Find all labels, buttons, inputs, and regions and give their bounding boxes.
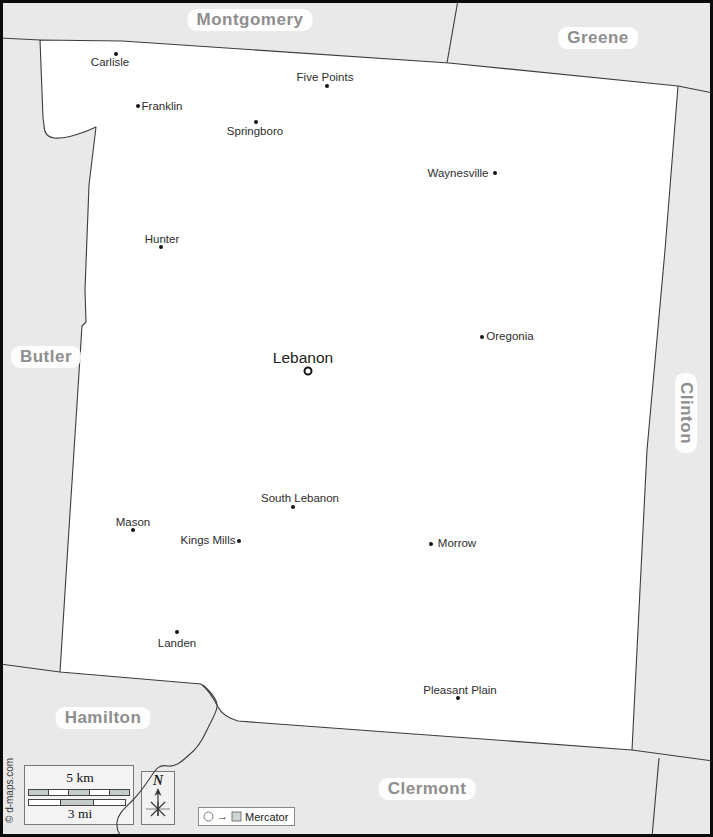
- compass-box: N: [141, 771, 175, 825]
- warren-county-shape: [40, 40, 678, 750]
- city-label-five-points: Five Points: [297, 71, 354, 83]
- county-label-clinton: Clinton: [675, 373, 697, 453]
- scale-mi-label: 3 mi: [25, 806, 135, 822]
- scale-mi-bar: [28, 799, 126, 806]
- city-label-carlisle: Carlisle: [91, 56, 129, 68]
- city-label-morrow: Morrow: [438, 537, 476, 549]
- city-dot-hunter: [159, 245, 163, 249]
- city-dot-morrow: [429, 542, 433, 546]
- city-label-mason: Mason: [116, 516, 151, 528]
- north-arrow-icon: [142, 772, 174, 824]
- city-label-springboro: Springboro: [227, 125, 283, 137]
- city-label-kings-mills: Kings Mills: [181, 534, 236, 546]
- scale-km-label: 5 km: [25, 770, 135, 786]
- city-label-south-lebanon: South Lebanon: [261, 492, 339, 504]
- arrow-right-icon: →: [217, 811, 228, 822]
- city-label-landen: Landen: [158, 637, 196, 649]
- square-icon: [231, 811, 242, 822]
- scale-bar-box: 5 km 3 mi: [24, 765, 134, 825]
- county-seat-ring-lebanon: [304, 367, 313, 376]
- city-label-franklin: Franklin: [142, 100, 183, 112]
- county-label-clermont: Clermont: [379, 778, 476, 800]
- city-dot-kings-mills: [237, 539, 241, 543]
- credit-text: © d-maps.com: [4, 758, 15, 823]
- city-dot-oregonia: [480, 335, 484, 339]
- county-label-greene: Greene: [558, 27, 638, 49]
- projection-legend: → Mercator: [198, 807, 295, 826]
- city-dot-pleasant-plain: [456, 696, 460, 700]
- city-dot-waynesville: [493, 171, 497, 175]
- city-dot-franklin: [136, 104, 140, 108]
- city-label-hunter: Hunter: [145, 233, 180, 245]
- city-dot-five-points: [325, 84, 329, 88]
- city-label-lebanon: Lebanon: [273, 349, 333, 367]
- city-dot-springboro: [254, 120, 258, 124]
- city-dot-south-lebanon: [291, 505, 295, 509]
- map-container: Montgomery Greene Butler Clinton Hamilto…: [0, 0, 713, 837]
- compass-star-icon: [146, 802, 170, 816]
- city-dot-landen: [175, 630, 179, 634]
- circle-icon: [203, 811, 214, 822]
- city-dot-mason: [131, 528, 135, 532]
- city-label-oregonia: Oregonia: [486, 330, 533, 342]
- city-label-waynesville: Waynesville: [428, 167, 489, 179]
- county-label-butler: Butler: [11, 346, 81, 368]
- county-label-hamilton: Hamilton: [56, 707, 151, 729]
- county-label-montgomery: Montgomery: [188, 9, 313, 31]
- city-label-pleasant-plain: Pleasant Plain: [423, 684, 497, 696]
- scale-km-bar: [28, 789, 130, 796]
- projection-label: Mercator: [245, 811, 288, 823]
